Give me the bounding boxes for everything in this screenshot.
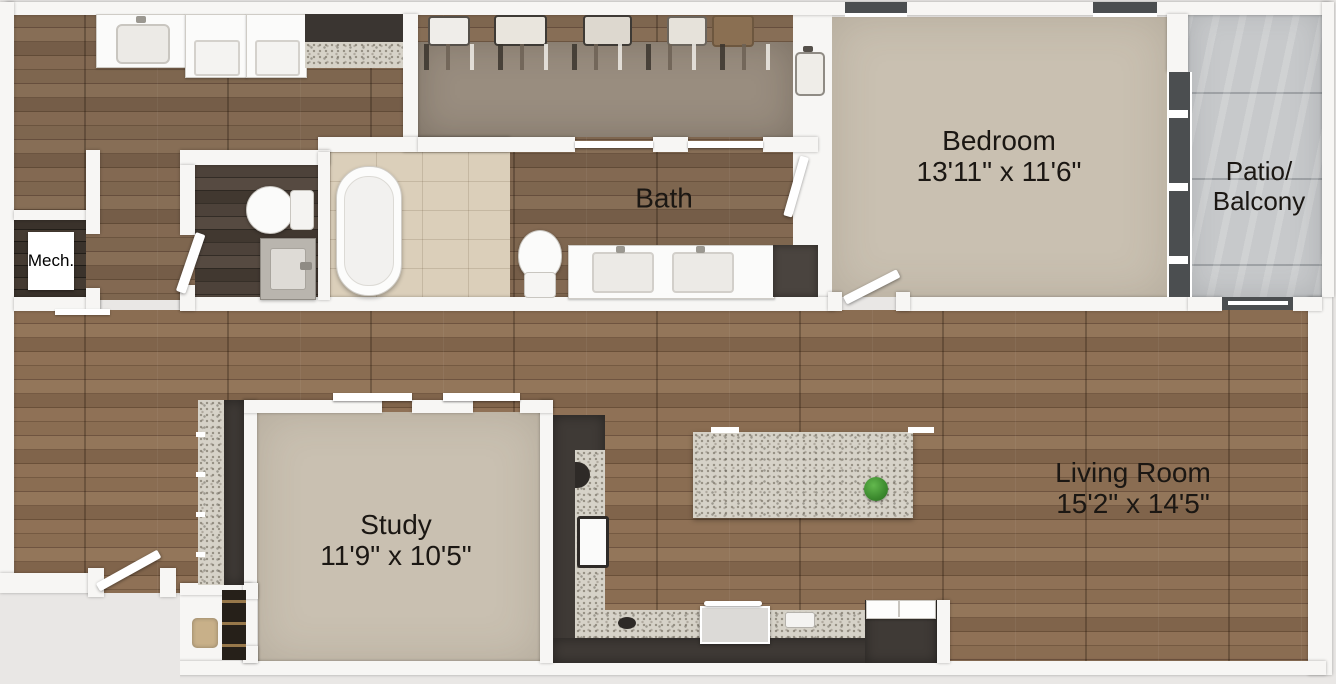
island-stool — [711, 427, 739, 433]
bedroom-door-post-left — [828, 292, 842, 311]
patio-label: Patio/ Balcony — [1213, 156, 1306, 216]
closet-basket — [712, 15, 754, 47]
standing-suitcase-handle — [803, 46, 813, 52]
living-room-name: Living Room — [1055, 457, 1211, 488]
wall-bedroom-living — [898, 297, 1188, 311]
wall-study-top-a — [243, 400, 382, 413]
bedroom-dims: 13'11" x 11'6" — [917, 156, 1082, 187]
standing-suitcase — [795, 52, 825, 96]
closet-sliding-door-2 — [688, 141, 763, 148]
wall-powder-top — [180, 150, 330, 165]
study-label: Study 11'9" x 10'5" — [320, 509, 471, 571]
niche-shelf-tab-2 — [196, 472, 205, 477]
study-name: Study — [320, 509, 471, 540]
wall-study-top-c — [520, 400, 553, 413]
wall-entry — [0, 573, 95, 593]
closet-sliding-door — [575, 141, 653, 148]
kitchen-island — [693, 432, 913, 518]
window-mullion-3 — [1167, 256, 1188, 264]
wall-right-living — [1308, 297, 1332, 675]
living-room-label: Living Room 15'2" x 14'5" — [1055, 457, 1211, 519]
entry-door-post-right — [160, 568, 176, 597]
wall-patio-living-b — [1293, 297, 1322, 311]
range-handle — [704, 601, 762, 606]
niche-shelf-tab-3 — [196, 512, 205, 517]
wall-bottom — [178, 661, 1326, 675]
laundry-counter-granite — [305, 42, 403, 68]
entry-closet-basket — [192, 618, 218, 648]
hanging-clothes — [424, 44, 790, 70]
window-mullion-2 — [1167, 183, 1188, 191]
wall-bedroom-patio-cap — [1167, 14, 1188, 72]
wall-patio-living-a — [1188, 297, 1222, 311]
refrigerator-door-split — [898, 600, 900, 617]
kitchen-sink — [577, 516, 609, 568]
mech-unit: Mech. — [28, 232, 74, 290]
bath-toilet-tank — [524, 272, 556, 298]
wall-kitchen-right — [937, 600, 950, 663]
floor-plan: Mech. Bedroom 13'11" x 11'6" Patio/ Balc… — [0, 0, 1336, 684]
niche-shelf-tab-4 — [196, 552, 205, 557]
wall-study-top-b — [412, 400, 473, 413]
island-plant — [864, 477, 888, 501]
study-sliding-door-2 — [443, 393, 520, 401]
range — [700, 606, 770, 644]
bath-label: Bath — [635, 183, 693, 214]
study-dims: 11'9" x 10'5" — [320, 540, 471, 571]
patio-name-line1: Patio/ — [1213, 156, 1306, 186]
bedroom-label: Bedroom 13'11" x 11'6" — [917, 125, 1082, 187]
powder-toilet-tank — [290, 190, 314, 230]
niche-shelf-tab — [196, 432, 205, 437]
dryer-door — [255, 40, 300, 76]
wall-closet-bath-b — [653, 137, 688, 152]
wall-study-right — [540, 400, 553, 663]
vanity-sink-left — [592, 252, 654, 293]
wall-powder-tub-divider — [318, 152, 330, 300]
bedroom-window-sill — [845, 13, 907, 17]
island-stool-2 — [908, 427, 934, 433]
wall-closet-bath-c — [763, 137, 818, 152]
wall-powder-left-a — [180, 165, 195, 235]
built-in-niche-counter — [198, 400, 224, 585]
vanity-sink-right — [672, 252, 734, 293]
washer-door — [194, 40, 240, 76]
vanity-faucet-right — [696, 246, 705, 253]
wall-left — [0, 2, 14, 595]
suitcase — [428, 16, 470, 46]
living-room-dims: 15'2" x 14'5" — [1055, 488, 1211, 519]
refrigerator — [866, 600, 936, 619]
mech-label: Mech. — [28, 251, 74, 271]
suitcase-4 — [667, 16, 707, 46]
patio-name-line2: Balcony — [1213, 186, 1306, 216]
bedroom-name: Bedroom — [917, 125, 1082, 156]
vanity-faucet-left — [616, 246, 625, 253]
bath-linen-cabinet — [773, 245, 818, 297]
study-sliding-door — [333, 393, 412, 401]
laundry-sink — [116, 24, 170, 64]
suitcase-2 — [494, 15, 547, 46]
wall-mech-top — [14, 210, 86, 220]
kitchen-small-appliance — [618, 617, 636, 629]
powder-toilet-bowl — [246, 186, 294, 234]
patio-sliding-door-rail — [1228, 301, 1288, 305]
entry-closet-shelving — [222, 590, 246, 660]
living-window-sill — [55, 309, 110, 315]
wall-hall-b — [86, 288, 100, 311]
bedroom-window-sill-2 — [1093, 13, 1157, 17]
wall-hall-a — [86, 150, 100, 234]
powder-faucet — [300, 262, 312, 270]
wall-closet-bath-a — [418, 137, 575, 152]
wall-laundry-closet — [403, 14, 418, 152]
exterior-cutout — [0, 593, 180, 684]
bath-name: Bath — [635, 183, 693, 214]
built-in-niche-back — [224, 400, 244, 585]
laundry-faucet — [136, 16, 146, 23]
bedroom-door-post-right — [896, 292, 910, 311]
patio-floor — [1188, 8, 1322, 297]
window-mullion — [1167, 110, 1188, 118]
bathtub-basin — [344, 176, 394, 286]
wall-right-patio — [1322, 2, 1334, 297]
laundry-dark-cabinet — [305, 14, 403, 42]
suitcase-3 — [583, 15, 632, 46]
prep-sink — [785, 612, 815, 628]
